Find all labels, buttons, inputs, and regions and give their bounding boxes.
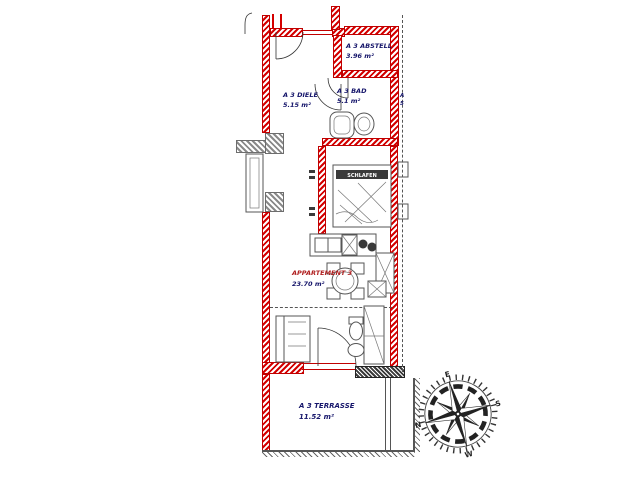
compass-rose: E S W N <box>412 368 504 460</box>
abstell-area-label: 3.96 m² <box>346 52 374 60</box>
sink <box>348 344 364 357</box>
toilet <box>349 317 363 340</box>
terrasse-area-label: 11.52 m² <box>299 413 334 422</box>
neighbor-door-line <box>245 13 252 34</box>
bad-room-label: A 3 BAD <box>337 87 366 95</box>
bathtub <box>330 112 354 138</box>
window-bay-left <box>246 154 263 212</box>
diele-area-label: 5.15 m² <box>283 101 311 109</box>
door-diele-entry <box>276 32 303 59</box>
stove-burner-1 <box>359 240 368 249</box>
window-right-upper <box>398 162 408 177</box>
window-right-lower <box>398 204 408 219</box>
bed: SCHLAFEN <box>333 165 391 227</box>
apartment-area-label: 23.70 m² <box>292 280 324 288</box>
bed-label: SCHLAFEN <box>347 173 377 179</box>
outlet-symbols <box>309 170 315 216</box>
compass-east-label: E <box>444 369 451 379</box>
sofa <box>276 316 310 362</box>
apartment-room-label: APPARTEMENT 3 <box>292 269 352 277</box>
compass-west-label: W <box>464 449 474 460</box>
floorplan-canvas: SCHLAFEN <box>0 0 640 480</box>
stove-burner-2 <box>368 243 377 252</box>
terrasse-room-label: A 3 TERRASSE <box>299 402 355 411</box>
compass-south-label: S <box>494 399 501 409</box>
neighbor-unit-label-line2: 5 <box>400 101 404 108</box>
neighbor-unit-label-line1: A <box>400 93 404 100</box>
kitchen-counter <box>310 234 377 256</box>
wardrobe <box>364 306 384 364</box>
bad-area-label: 5.1 m² <box>337 97 360 105</box>
compass-north-label: N <box>414 420 422 430</box>
washbasin <box>354 113 374 135</box>
abstell-room-label: A 3 ABSTELL <box>346 42 392 50</box>
diele-room-label: A 3 DIELE <box>283 91 318 99</box>
shower <box>368 281 386 297</box>
